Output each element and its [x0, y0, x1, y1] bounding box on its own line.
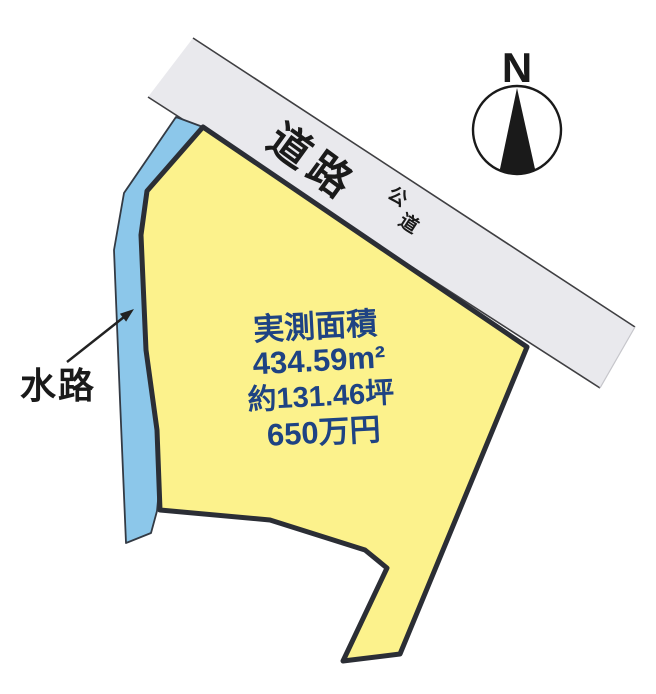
plot-drawing: 道路 公 道 実測面積 434.59m² 約131.46坪 650万円 水路 N — [0, 0, 656, 694]
price-label: 650万円 — [266, 412, 381, 453]
land-plot-diagram: 道路 公 道 実測面積 434.59m² 約131.46坪 650万円 水路 N — [0, 0, 656, 694]
area-square-meters: 434.59m² — [252, 339, 386, 381]
north-label: N — [502, 44, 532, 91]
compass-needle-base — [500, 165, 535, 173]
waterway-label: 水路 — [20, 365, 96, 406]
